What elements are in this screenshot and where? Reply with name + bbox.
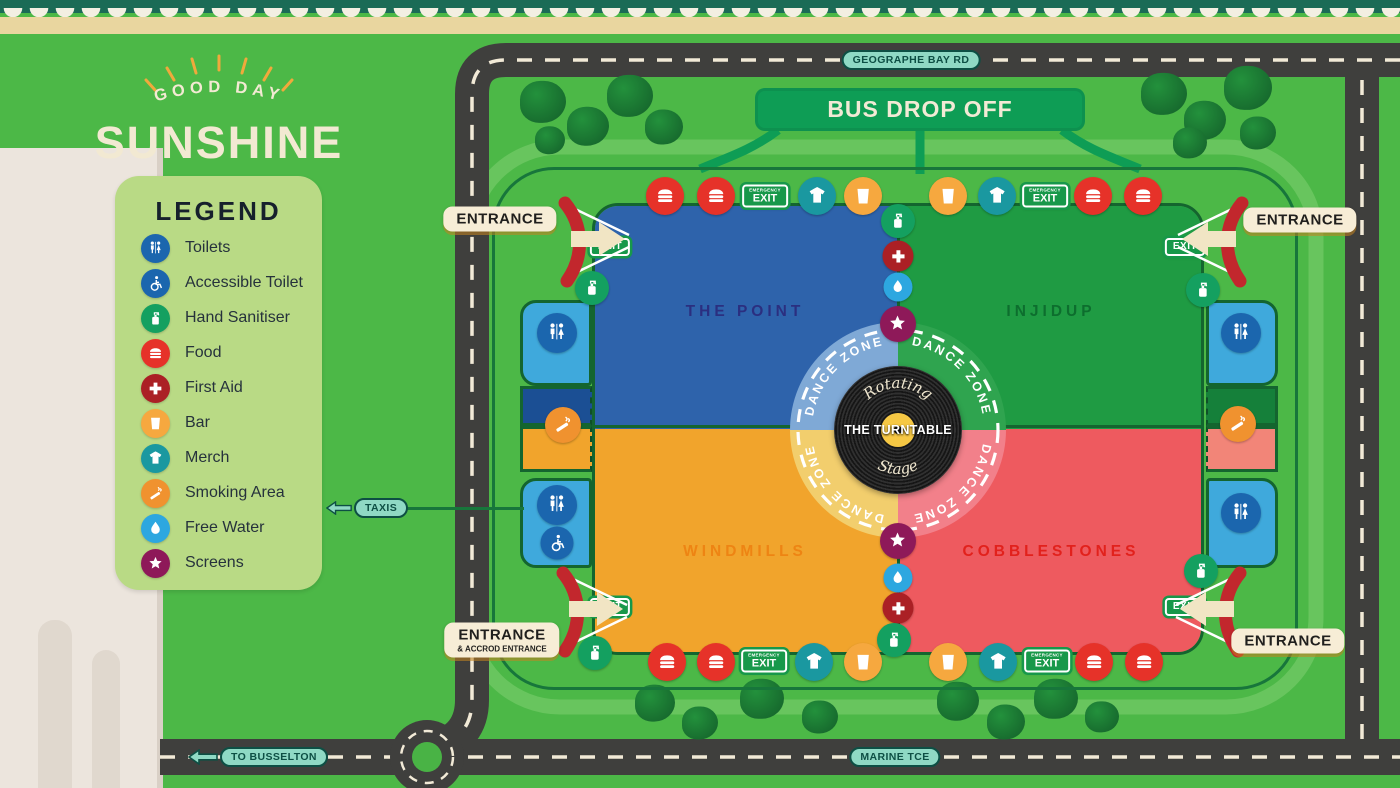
sanitiser-icon [881,204,915,238]
bar-icon [929,643,967,681]
food-icon [141,339,170,368]
food-icon [1074,177,1112,215]
bar-icon [844,643,882,681]
bar-icon [141,409,170,438]
legend-item-label: First Aid [185,379,243,397]
toilets-icon [141,234,170,263]
road-label-geographe-bay: GEOGRAPHE BAY RD [842,50,981,70]
svg-text:Stage: Stage [875,456,920,478]
entrance-label-ne: ENTRANCE [1243,208,1356,233]
tree-icon [645,110,683,145]
toilets-icon [1221,493,1261,533]
food-icon [648,643,686,681]
merch-icon [798,177,836,215]
tree-icon [987,705,1025,740]
taxi-arrow-icon [326,501,352,515]
toilets-icon [537,313,577,353]
svg-text:GOOD DAY: GOOD DAY [152,78,286,106]
road-label-taxis: TAXIS [354,498,408,518]
toilets-icon [1221,313,1261,353]
toilets-icon [537,485,577,525]
water-icon [884,564,913,593]
emergency-exit-sign: EMERGENCYEXIT [742,185,788,208]
legend-item-label: Bar [185,414,210,432]
screen-icon [141,549,170,578]
legend-item-label: Screens [185,554,244,572]
emergency-exit-sign: EMERGENCYEXIT [1022,185,1068,208]
firstaid-icon [883,241,914,272]
stage-script-bottom: Stage [875,456,920,478]
legend-item-bar: Bar [141,409,322,437]
merch-icon [978,177,1016,215]
smoking-icon [1220,406,1256,442]
stage-name: THE TURNTABLE [834,423,962,437]
legend-item-water: Free Water [141,514,322,542]
svg-text:Rotating: Rotating [859,374,936,404]
accessible-icon [541,527,574,560]
legend-item-toilets: Toilets [141,234,322,262]
food-icon [697,177,735,215]
logo-arc: GOOD DAY [66,50,372,120]
food-icon [1075,643,1113,681]
emergency-exit-sign: EMERGENCYEXIT [741,650,787,673]
road-label-marine-tce: MARINE TCE [849,747,940,767]
legend-item-label: Accessible Toilet [185,274,303,292]
smoking-icon [545,407,581,443]
merch-icon [795,643,833,681]
logo-tagline: GOOD DAY [152,78,286,106]
taxis-sign: TAXIS [326,498,408,518]
legend-title: LEGEND [115,196,322,227]
legend-item-firstaid: First Aid [141,374,322,402]
logo-title: SUNSHINE [66,117,372,169]
legend-item-label: Free Water [185,519,264,537]
tree-icon [635,685,675,722]
screen-icon [880,306,916,342]
bus-drop-off: BUS DROP OFF [755,88,1085,131]
tree-icon [567,107,609,146]
legend-item-screen: Screens [141,549,322,577]
entrance-label-sw: ENTRANCE& ACCROD ENTRANCE [444,623,559,658]
food-icon [697,643,735,681]
tree-icon [535,126,565,154]
festival-logo: GOOD DAY SUNSHINE [66,50,372,169]
entrance-gate-se [1150,563,1270,673]
bar-icon [844,177,882,215]
taxi-path [400,507,524,510]
legend-item-accessible: Accessible Toilet [141,269,322,297]
screen-icon [880,523,916,559]
legend-panel: LEGEND ToiletsAccessible ToiletHand Sani… [115,176,322,590]
legend-item-label: Smoking Area [185,484,285,502]
emergency-exit-sign: EMERGENCYEXIT [1024,650,1070,673]
sanitiser-icon [877,623,911,657]
water-icon [141,514,170,543]
merch-icon [979,643,1017,681]
merch-icon [141,444,170,473]
stage-script-top: Rotating [859,374,936,404]
smoking-icon [141,479,170,508]
legend-items: ToiletsAccessible ToiletHand SanitiserFo… [115,234,322,577]
legend-item-label: Toilets [185,239,230,257]
legend-item-merch: Merch [141,444,322,472]
bus-drop-off-label: BUS DROP OFF [827,96,1012,123]
accessible-icon [141,269,170,298]
sanitiser-icon [141,304,170,333]
entrance-label-nw: ENTRANCE [443,207,556,232]
festival-map: THE POINT INJIDUP WINDMILLS COBBLESTONES… [0,0,1400,788]
west-arrow-icon [188,749,218,765]
legend-item-smoking: Smoking Area [141,479,322,507]
firstaid-icon [883,593,914,624]
legend-item-label: Food [185,344,221,362]
legend-item-label: Hand Sanitiser [185,309,290,327]
bar-icon [929,177,967,215]
road-label-to-busselton: TO BUSSELTON [220,747,328,767]
to-busselton-sign: TO BUSSELTON [188,747,328,767]
legend-item-label: Merch [185,449,229,467]
entrance-label-se: ENTRANCE [1231,629,1344,654]
legend-item-sanitiser: Hand Sanitiser [141,304,322,332]
water-icon [884,273,913,302]
firstaid-icon [141,374,170,403]
legend-item-food: Food [141,339,322,367]
